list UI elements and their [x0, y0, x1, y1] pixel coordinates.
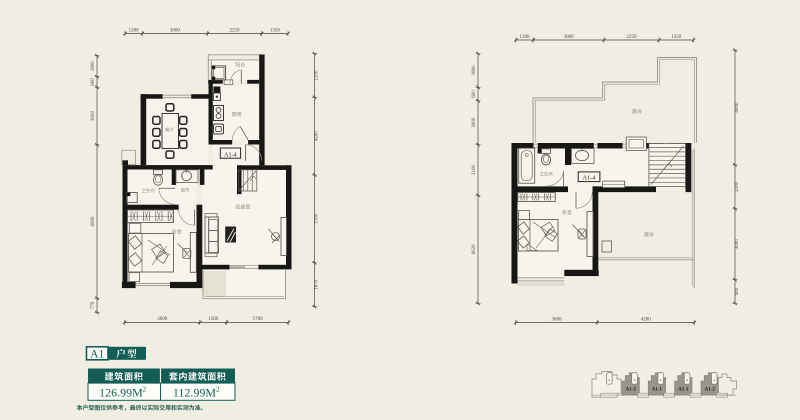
svg-text:A1-4: A1-4 — [224, 151, 237, 158]
svg-text:3000: 3000 — [472, 117, 477, 128]
svg-text:A1-1: A1-1 — [678, 388, 689, 393]
svg-text:1200: 1200 — [129, 28, 140, 33]
svg-text:112.99M: 112.99M — [173, 386, 217, 400]
svg-text:3600: 3600 — [551, 317, 562, 322]
svg-text:3000: 3000 — [735, 239, 740, 250]
svg-text:1200: 1200 — [315, 70, 320, 81]
svg-text:A1-2: A1-2 — [626, 388, 637, 393]
svg-text:1700: 1700 — [253, 317, 264, 322]
svg-text:600: 600 — [91, 78, 96, 86]
svg-text:A1-2: A1-2 — [705, 388, 716, 393]
svg-text:3600: 3600 — [157, 317, 168, 322]
svg-text:A1-1: A1-1 — [652, 388, 663, 393]
svg-text:2250: 2250 — [230, 28, 241, 33]
svg-text:1800: 1800 — [472, 65, 477, 76]
svg-text:2: 2 — [143, 386, 147, 394]
svg-text:1500: 1500 — [208, 317, 219, 322]
svg-text:1670: 1670 — [315, 279, 320, 290]
svg-text:3000: 3000 — [170, 28, 181, 33]
svg-text:A1: A1 — [90, 349, 104, 361]
svg-text:600: 600 — [472, 90, 477, 98]
svg-text:6000: 6000 — [91, 216, 96, 227]
svg-text:4200: 4200 — [641, 317, 652, 322]
svg-text:3000: 3000 — [564, 35, 575, 40]
svg-text:3700: 3700 — [315, 213, 320, 224]
svg-text:6029: 6029 — [472, 244, 477, 255]
svg-text:A1-4: A1-4 — [583, 175, 596, 182]
svg-text:4200: 4200 — [315, 131, 320, 142]
svg-text:1350: 1350 — [671, 35, 682, 40]
svg-text:2: 2 — [216, 386, 220, 394]
svg-text:2100: 2100 — [472, 165, 477, 176]
svg-text:3000: 3000 — [91, 111, 96, 122]
svg-text:1800: 1800 — [91, 61, 96, 72]
svg-text:900: 900 — [735, 287, 740, 295]
svg-text:779: 779 — [91, 301, 96, 309]
svg-text:126.99M: 126.99M — [99, 386, 143, 400]
svg-text:1200: 1200 — [520, 35, 531, 40]
svg-text:6000: 6000 — [735, 102, 740, 113]
svg-text:2100: 2100 — [735, 181, 740, 192]
svg-text:2250: 2250 — [627, 35, 638, 40]
svg-text:1350: 1350 — [270, 28, 281, 33]
